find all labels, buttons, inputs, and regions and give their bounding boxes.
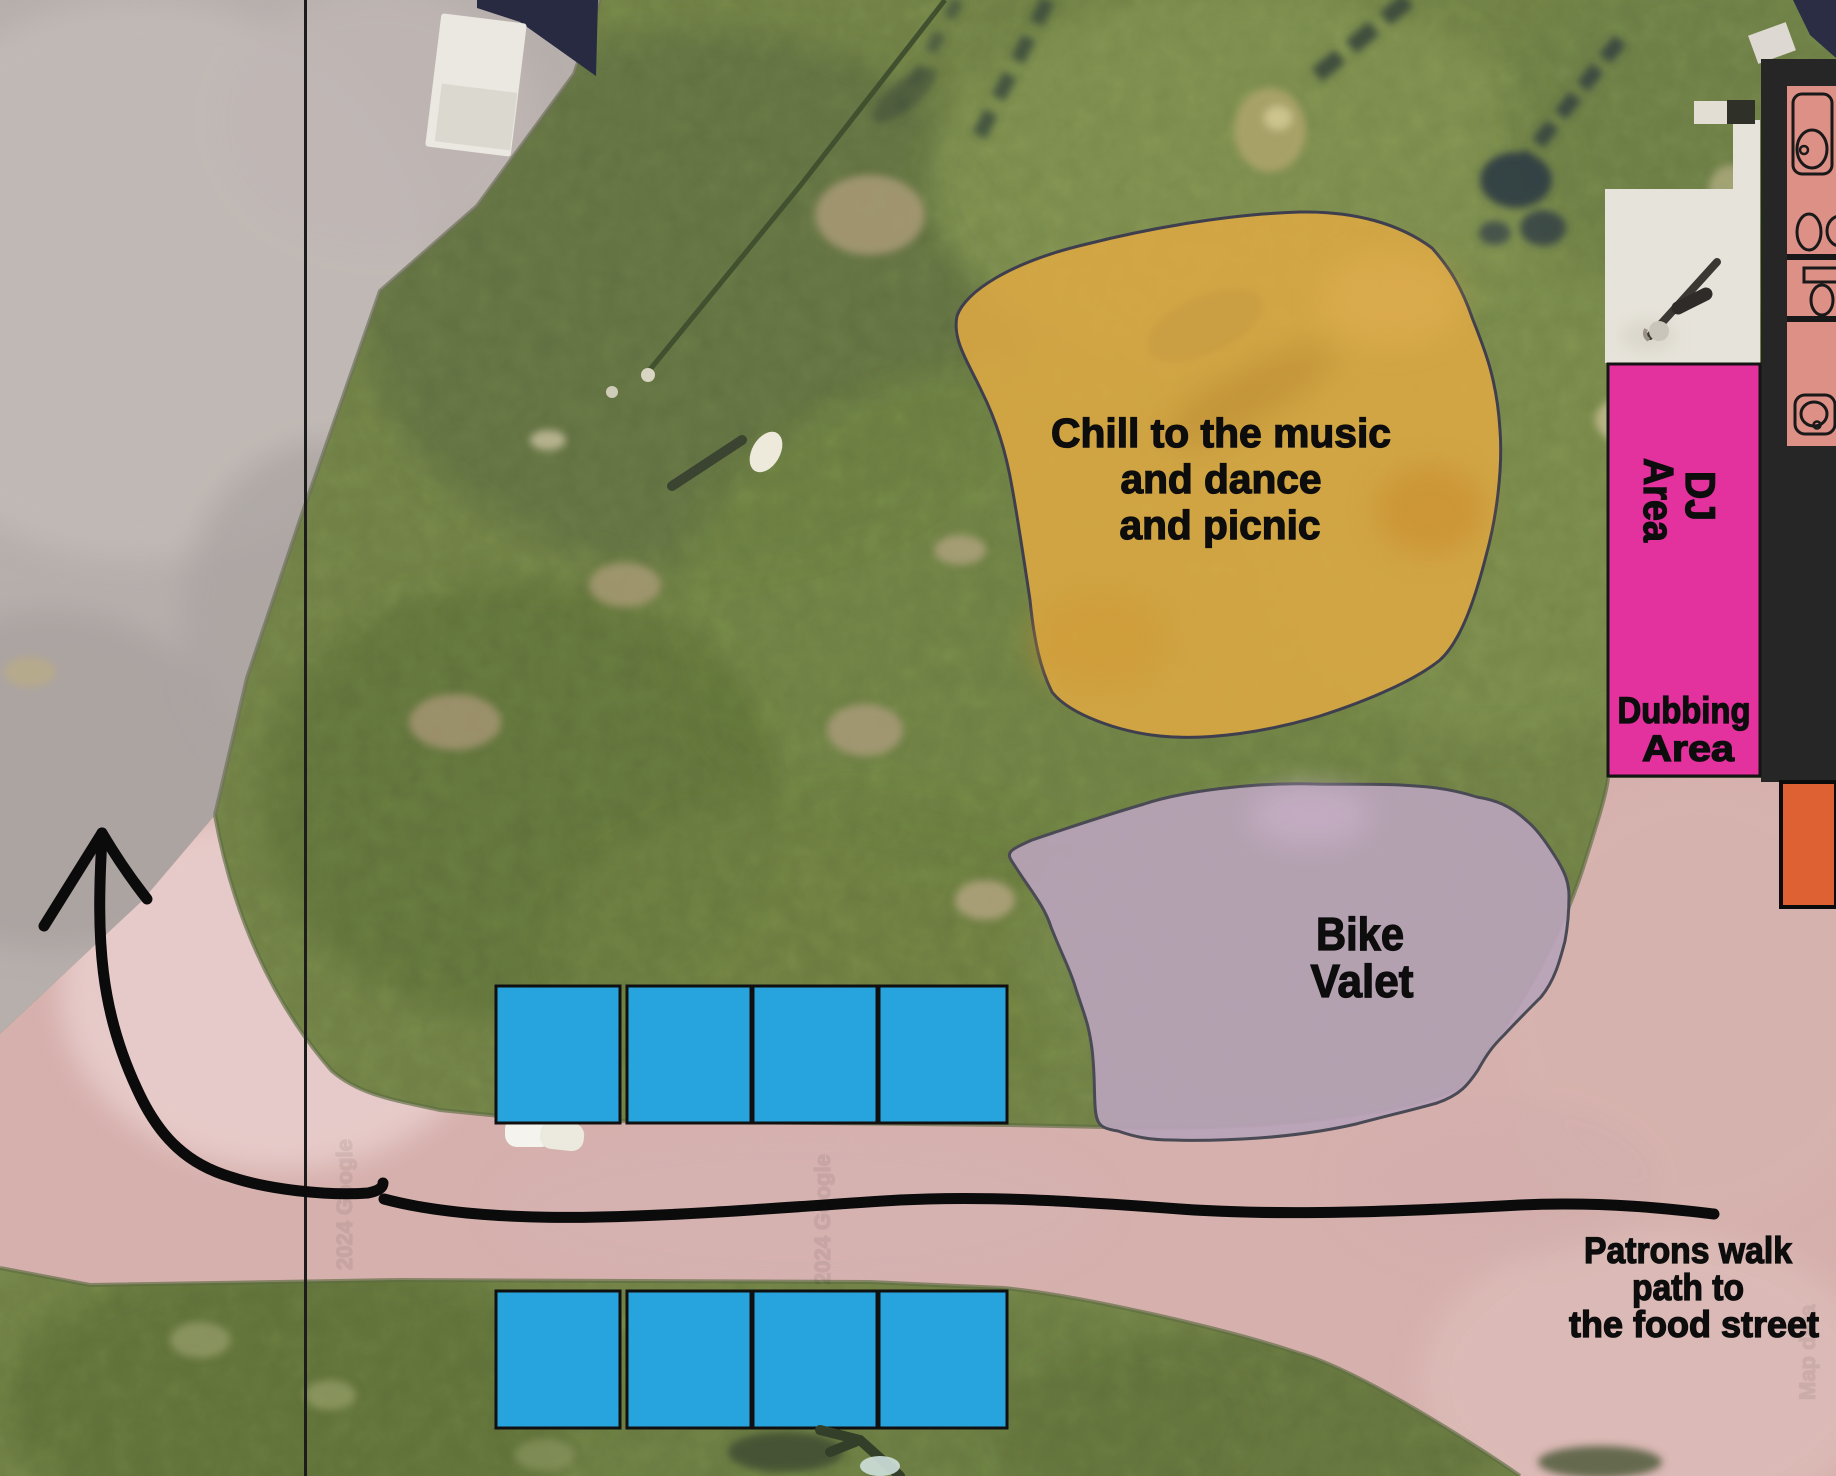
svg-text:and picnic: and picnic [1120,502,1321,548]
svg-text:2024 Google: 2024 Google [810,1154,835,1285]
svg-text:path to: path to [1632,1267,1744,1308]
svg-text:Valet: Valet [1311,955,1414,1007]
svg-text:Area: Area [1642,728,1734,769]
svg-text:Map data: Map data [1795,1304,1820,1400]
svg-text:and dance: and dance [1121,456,1322,502]
svg-text:Dubbing: Dubbing [1618,690,1751,731]
svg-text:DJ: DJ [1677,471,1724,521]
svg-text:Bike: Bike [1316,908,1404,960]
svg-text:the food street: the food street [1569,1304,1819,1345]
svg-text:2024 Google: 2024 Google [332,1139,357,1270]
svg-text:Patrons walk: Patrons walk [1584,1230,1792,1271]
svg-text:Chill to the music: Chill to the music [1051,410,1391,456]
svg-text:Area: Area [1635,458,1682,543]
